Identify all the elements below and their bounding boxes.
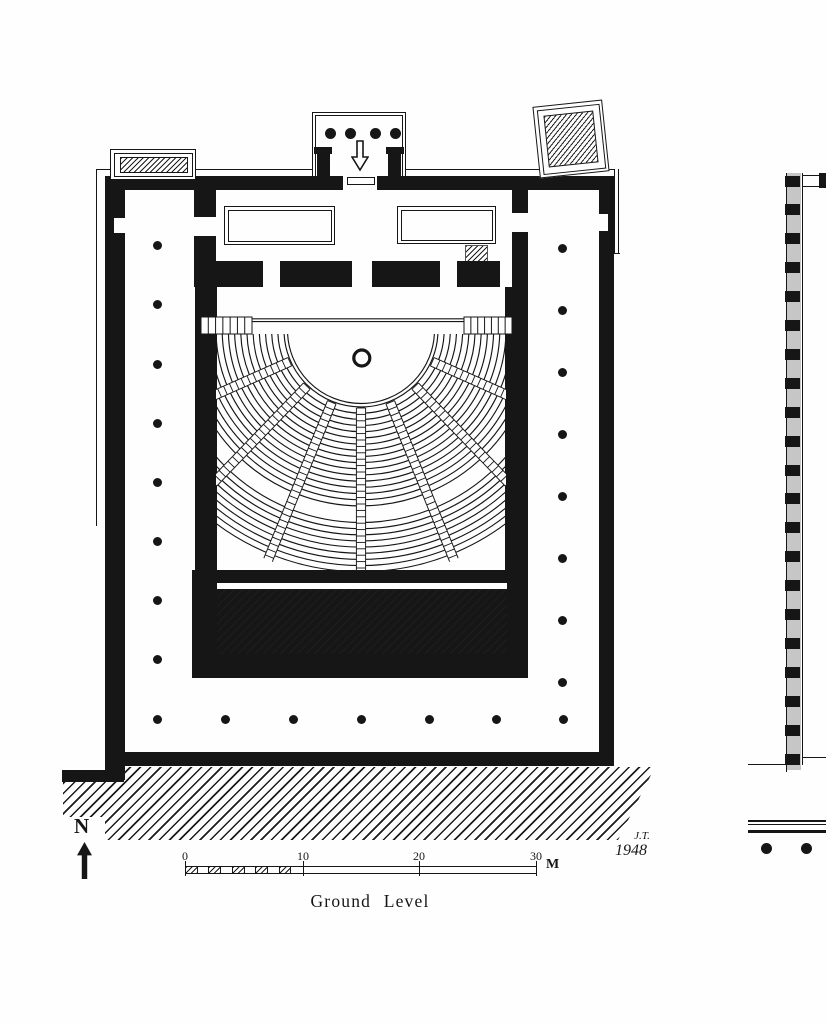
scale-bar-cell xyxy=(290,867,303,873)
tilted-monument-hatch xyxy=(543,111,598,168)
scale-unit-label: M xyxy=(546,857,559,873)
stairway-lane xyxy=(356,408,365,578)
hall-door-left xyxy=(194,217,216,236)
parodos-stair-treads xyxy=(201,317,252,334)
wall-pier xyxy=(785,436,800,447)
wall-pier xyxy=(785,291,800,302)
seat-rows xyxy=(192,308,536,578)
outer-wall-left xyxy=(105,176,125,780)
wall-pier xyxy=(785,522,800,533)
aisle-column-dot xyxy=(558,678,567,687)
wall-pier xyxy=(785,407,800,418)
fragment-bottom-line-left xyxy=(748,764,788,765)
wall-pier xyxy=(785,349,800,360)
outer-wall-right xyxy=(599,176,614,752)
fragment-corner-pier xyxy=(819,173,826,188)
signature: J.T. 1948 xyxy=(600,831,662,859)
pier-wall-segment xyxy=(512,261,528,287)
porch-column-dot xyxy=(390,128,401,139)
portico-column-dot xyxy=(153,715,162,724)
east-door-notch xyxy=(599,214,608,231)
pier-wall-segment xyxy=(194,261,263,287)
wall-pier xyxy=(785,493,800,504)
portico-column-dot xyxy=(559,715,568,724)
entrance-porch xyxy=(312,112,406,176)
wall-pier xyxy=(785,204,800,215)
portico-column-dot xyxy=(221,715,230,724)
portico-column-dot xyxy=(289,715,298,724)
fragment-wall-line-right xyxy=(802,173,803,765)
wall-pier xyxy=(785,176,800,187)
porch-column-dot xyxy=(345,128,356,139)
aisle-column-dot xyxy=(153,537,162,546)
wall-pier xyxy=(785,667,800,678)
outer-wall-bottom xyxy=(105,752,614,766)
caption-ground-level: Ground Level xyxy=(285,891,455,912)
pier-wall-segment xyxy=(372,261,440,287)
aisle-column-dot xyxy=(558,554,567,563)
signature-initials: J.T. xyxy=(600,831,662,843)
stylobate-line xyxy=(748,824,826,825)
porch-column-dot xyxy=(370,128,381,139)
porch-column-dot xyxy=(325,128,336,139)
wall-pier xyxy=(785,320,800,331)
scale-bar-tick xyxy=(185,861,186,876)
wall-pier xyxy=(785,262,800,273)
auditorium-seating xyxy=(192,308,536,584)
west-door-notch xyxy=(114,218,125,233)
hall-door-right xyxy=(512,213,528,232)
porch-anta-right xyxy=(388,152,401,178)
ground-hatching xyxy=(60,765,660,845)
wall-pier xyxy=(785,725,800,736)
aisle-column-dot xyxy=(153,241,162,250)
north-label: N xyxy=(74,814,89,839)
outer-wall-step xyxy=(62,770,124,782)
wall-panel-right-inner xyxy=(401,210,493,241)
wall-panel-left-inner xyxy=(228,210,332,242)
stylobate-line xyxy=(748,830,826,833)
aisle-column-dot xyxy=(153,596,162,605)
portico-column-dot xyxy=(357,715,366,724)
wall-pier xyxy=(785,233,800,244)
wall-pier xyxy=(785,638,800,649)
wall-pier xyxy=(785,609,800,620)
adjacent-building-fragment xyxy=(740,165,826,865)
stylobate-column-dot xyxy=(801,843,812,854)
offset-line-right-b xyxy=(618,169,619,254)
portico-column-dot xyxy=(492,715,501,724)
wall-pier xyxy=(785,378,800,389)
aisle-column-dot xyxy=(558,368,567,377)
aisle-column-dot xyxy=(558,306,567,315)
wall-pier xyxy=(785,551,800,562)
aisle-column-dot xyxy=(558,430,567,439)
aisle-column-dot xyxy=(153,300,162,309)
wall-pier xyxy=(785,696,800,707)
porch-anta-left xyxy=(317,152,330,178)
offset-line-left xyxy=(96,169,97,526)
scale-bar: 0 10 20 30 M xyxy=(180,849,580,879)
parodos-stair-treads xyxy=(464,317,512,334)
aisle-column-dot xyxy=(153,655,162,664)
pier-wall-segment xyxy=(280,261,352,287)
wall-pier xyxy=(785,580,800,591)
scale-bar-line-bottom xyxy=(185,873,536,874)
wall-pier xyxy=(785,754,800,765)
scale-bar-tick xyxy=(419,861,420,876)
wall-panel-left xyxy=(224,206,335,245)
tilted-monument xyxy=(532,100,609,179)
stylobate-line xyxy=(748,820,826,822)
orchestra-circle xyxy=(354,350,370,366)
aisle-column-dot xyxy=(153,478,162,487)
wall-panel-right xyxy=(397,206,496,244)
pier-wall-segment xyxy=(457,261,500,287)
wall-pier xyxy=(785,465,800,476)
aisle-column-dot xyxy=(558,616,567,625)
scale-bar-tick xyxy=(303,861,304,876)
portico-column-dot xyxy=(425,715,434,724)
north-annex xyxy=(110,149,196,180)
aisle-column-dot xyxy=(153,419,162,428)
entrance-arrow-icon xyxy=(351,140,369,172)
north-annex-hatch xyxy=(120,157,188,173)
entrance-threshold xyxy=(347,177,375,185)
stylobate-column-dot xyxy=(761,843,772,854)
stage-platform-hatch xyxy=(217,589,507,654)
signature-year: 1948 xyxy=(600,843,662,860)
aisle-column-dot xyxy=(558,244,567,253)
fragment-bottom-line-right xyxy=(802,757,826,758)
aisle-column-dot xyxy=(558,492,567,501)
aisle-column-dot xyxy=(153,360,162,369)
scale-bar-tick xyxy=(536,861,537,876)
